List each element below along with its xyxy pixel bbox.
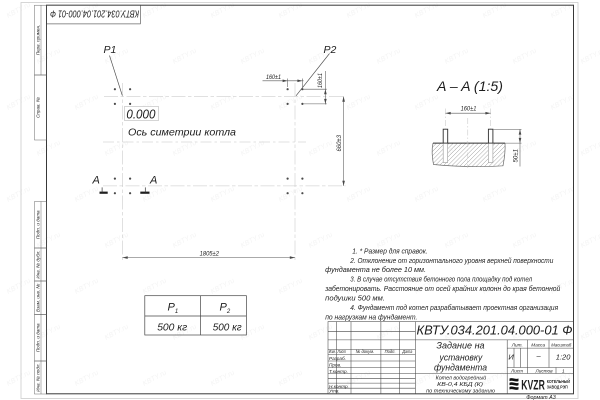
svg-text:КВ-0,4 КБД (К): КВ-0,4 КБД (К) — [437, 382, 483, 388]
svg-text:И: И — [508, 353, 514, 362]
svg-text:500 кг: 500 кг — [213, 321, 242, 333]
svg-text:A: A — [149, 175, 157, 187]
svg-text:A – A (1:5): A – A (1:5) — [436, 78, 503, 94]
svg-text:Масштаб: Масштаб — [551, 342, 571, 347]
svg-text:KVZR: KVZR — [521, 377, 545, 392]
svg-text:Подп. и дата: Подп. и дата — [36, 323, 41, 352]
svg-text:забетонировать. Расстояние от: забетонировать. Расстояние от осей крайн… — [324, 284, 560, 293]
svg-text:Листов: Листов — [535, 368, 554, 373]
svg-text:Дата: Дата — [402, 349, 413, 354]
svg-text:A: A — [92, 175, 100, 187]
svg-text:660±3: 660±3 — [337, 134, 343, 151]
svg-text:КВТУ.034.201.04.000-01 Ф: КВТУ.034.201.04.000-01 Ф — [50, 8, 139, 19]
svg-text:1805±2: 1805±2 — [200, 251, 220, 257]
svg-text:Справ. №: Справ. № — [36, 97, 41, 118]
svg-text:3. В случае отсутствия бетонно: 3. В случае отсутствия бетонного пола пл… — [350, 275, 532, 284]
svg-text:Лист: Лист — [337, 349, 346, 354]
svg-text:Лист: Лист — [510, 368, 523, 373]
svg-text:4. Фундамент под котел разраба: 4. Фундамент под котел разрабатывает про… — [350, 303, 558, 312]
svg-text:КОТЕЛЬНЫЙ: КОТЕЛЬНЫЙ — [547, 379, 570, 384]
svg-text:160±1: 160±1 — [318, 73, 324, 88]
svg-text:по нагрузкам на фундамент.: по нагрузкам на фундамент. — [325, 312, 417, 321]
svg-text:Разраб.: Разраб. — [329, 356, 346, 361]
svg-text:50±1: 50±1 — [513, 149, 519, 163]
svg-text:установку: установку — [439, 352, 483, 362]
svg-text:Перв. примен.: Перв. примен. — [36, 25, 41, 56]
svg-text:ЗАВОД РЭП: ЗАВОД РЭП — [547, 385, 568, 390]
svg-text:фундамента: фундамента — [434, 362, 487, 372]
svg-text:Лит.: Лит. — [511, 342, 523, 347]
svg-text:160±1: 160±1 — [266, 75, 281, 81]
svg-text:–: – — [536, 351, 542, 360]
svg-text:Котел водогрейный: Котел водогрейный — [436, 375, 487, 382]
svg-text:2. Отклонение от горизонтально: 2. Отклонение от горизонтального уровня … — [349, 256, 553, 265]
svg-text:КВТУ.034.201.04.000-01 Ф: КВТУ.034.201.04.000-01 Ф — [417, 323, 573, 337]
svg-text:P1: P1 — [104, 44, 117, 56]
svg-text:Задание на: Задание на — [436, 341, 484, 351]
svg-text:Подп. и дата: Подп. и дата — [36, 210, 41, 239]
svg-text:Взам. инв. №: Взам. инв. № — [36, 284, 41, 312]
svg-text:Подп.: Подп. — [385, 349, 396, 354]
svg-text:Пров.: Пров. — [329, 362, 341, 367]
svg-text:Инв. № дубл.: Инв. № дубл. — [36, 250, 41, 278]
svg-text:Ось симетрии котла: Ось симетрии котла — [128, 127, 236, 138]
svg-text:1: 1 — [562, 368, 565, 373]
svg-text:фундамента не более 10 мм.: фундамента не более 10 мм. — [325, 265, 426, 274]
svg-text:Инв. № подл.: Инв. № подл. — [36, 363, 41, 392]
svg-text:P2: P2 — [324, 44, 337, 56]
svg-text:1. * Размер для справок.: 1. * Размер для справок. — [352, 246, 427, 255]
svg-text:подушки 500 мм.: подушки 500 мм. — [325, 294, 385, 303]
svg-text:500 кг: 500 кг — [157, 321, 187, 333]
svg-text:Т.контр.: Т.контр. — [329, 369, 348, 374]
svg-text:Утв.: Утв. — [329, 389, 340, 394]
svg-text:№ докум.: № докум. — [356, 349, 375, 354]
svg-text:1:20: 1:20 — [556, 353, 571, 362]
svg-text:Изм.: Изм. — [329, 349, 336, 354]
svg-text:по техническому заданию: по техническому заданию — [426, 389, 496, 395]
svg-text:Формат А3: Формат А3 — [526, 395, 556, 400]
svg-text:160±1: 160±1 — [461, 107, 477, 113]
svg-text:Масса: Масса — [531, 342, 545, 347]
svg-text:0.000: 0.000 — [126, 107, 155, 121]
